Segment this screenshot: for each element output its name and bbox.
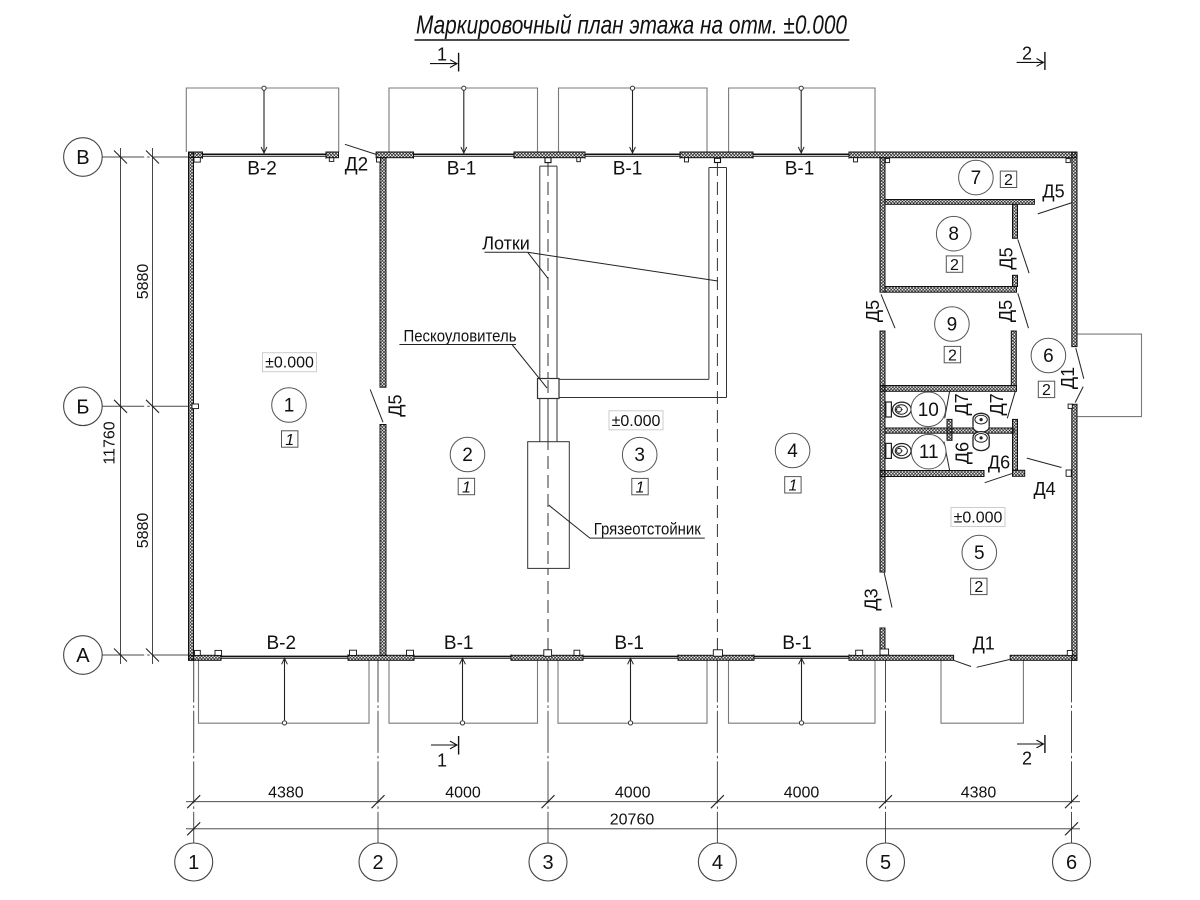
svg-text:В-1: В-1 bbox=[444, 633, 474, 654]
svg-text:11760: 11760 bbox=[102, 421, 119, 464]
svg-text:±0.000: ±0.000 bbox=[612, 413, 661, 430]
svg-text:2: 2 bbox=[372, 852, 383, 874]
svg-text:Д1: Д1 bbox=[973, 633, 995, 653]
svg-text:В-1: В-1 bbox=[613, 159, 643, 180]
svg-text:Б: Б bbox=[76, 396, 89, 418]
svg-text:2: 2 bbox=[950, 257, 959, 274]
svg-text:Д7: Д7 bbox=[952, 393, 972, 415]
svg-text:1: 1 bbox=[437, 45, 447, 65]
svg-text:Д4: Д4 bbox=[1033, 479, 1055, 499]
svg-text:3: 3 bbox=[634, 445, 645, 466]
svg-text:1: 1 bbox=[188, 852, 199, 874]
svg-text:Д1: Д1 bbox=[1058, 367, 1078, 389]
svg-text:Д5: Д5 bbox=[996, 300, 1016, 322]
svg-text:Лотки: Лотки bbox=[482, 234, 530, 254]
svg-text:Д7: Д7 bbox=[987, 393, 1007, 415]
svg-text:5880: 5880 bbox=[135, 264, 152, 300]
svg-text:1: 1 bbox=[284, 396, 295, 417]
svg-text:5: 5 bbox=[974, 543, 985, 564]
svg-text:Д5: Д5 bbox=[1042, 181, 1064, 201]
svg-text:7: 7 bbox=[971, 168, 982, 189]
svg-text:Д6: Д6 bbox=[988, 453, 1010, 473]
svg-text:Д2: Д2 bbox=[345, 155, 368, 176]
svg-text:В-2: В-2 bbox=[247, 159, 277, 180]
svg-text:8: 8 bbox=[948, 224, 959, 245]
svg-text:Д6: Д6 bbox=[952, 442, 972, 464]
svg-text:В-1: В-1 bbox=[447, 159, 477, 180]
svg-text:4380: 4380 bbox=[961, 785, 997, 802]
svg-text:6: 6 bbox=[1043, 346, 1054, 367]
svg-text:2: 2 bbox=[948, 347, 957, 364]
svg-text:2: 2 bbox=[1042, 382, 1051, 399]
svg-text:В-2: В-2 bbox=[267, 633, 297, 654]
svg-text:А: А bbox=[76, 645, 90, 667]
svg-text:10: 10 bbox=[918, 400, 939, 421]
svg-text:1: 1 bbox=[285, 432, 294, 449]
svg-text:4000: 4000 bbox=[615, 785, 651, 802]
svg-text:2: 2 bbox=[1022, 44, 1032, 64]
svg-text:1: 1 bbox=[788, 478, 797, 495]
svg-text:4380: 4380 bbox=[268, 785, 304, 802]
svg-text:1: 1 bbox=[437, 751, 447, 771]
svg-text:11: 11 bbox=[919, 442, 939, 463]
svg-text:4000: 4000 bbox=[445, 785, 481, 802]
svg-text:2: 2 bbox=[1004, 172, 1013, 189]
svg-text:В-1: В-1 bbox=[614, 633, 644, 654]
svg-text:2: 2 bbox=[974, 579, 983, 596]
svg-text:1: 1 bbox=[636, 479, 645, 496]
svg-text:9: 9 bbox=[947, 315, 958, 336]
svg-text:3: 3 bbox=[542, 852, 553, 874]
svg-text:Маркировочный план этажа на от: Маркировочный план этажа на отм. ±0.000 bbox=[416, 10, 847, 40]
svg-text:6: 6 bbox=[1066, 852, 1077, 874]
svg-text:5: 5 bbox=[880, 852, 891, 874]
svg-text:4: 4 bbox=[712, 852, 723, 874]
svg-text:2: 2 bbox=[462, 445, 473, 466]
svg-text:±0.000: ±0.000 bbox=[265, 355, 314, 372]
svg-text:Д5: Д5 bbox=[996, 247, 1016, 269]
svg-text:4000: 4000 bbox=[784, 785, 820, 802]
svg-text:Д5: Д5 bbox=[863, 300, 883, 322]
svg-text:Д5: Д5 bbox=[385, 394, 405, 416]
svg-text:4: 4 bbox=[787, 441, 798, 462]
svg-text:Д3: Д3 bbox=[861, 588, 881, 610]
svg-text:Пескоуловитель: Пескоуловитель bbox=[404, 327, 517, 346]
svg-text:В: В bbox=[76, 147, 89, 169]
svg-text:20760: 20760 bbox=[610, 812, 655, 829]
svg-text:±0.000: ±0.000 bbox=[954, 510, 1003, 527]
svg-text:5880: 5880 bbox=[135, 513, 152, 549]
svg-text:2: 2 bbox=[1022, 749, 1032, 769]
svg-text:В-1: В-1 bbox=[782, 633, 812, 654]
svg-text:1: 1 bbox=[462, 479, 471, 496]
svg-text:В-1: В-1 bbox=[785, 159, 815, 180]
svg-text:Грязеотстойник: Грязеотстойник bbox=[594, 520, 701, 539]
